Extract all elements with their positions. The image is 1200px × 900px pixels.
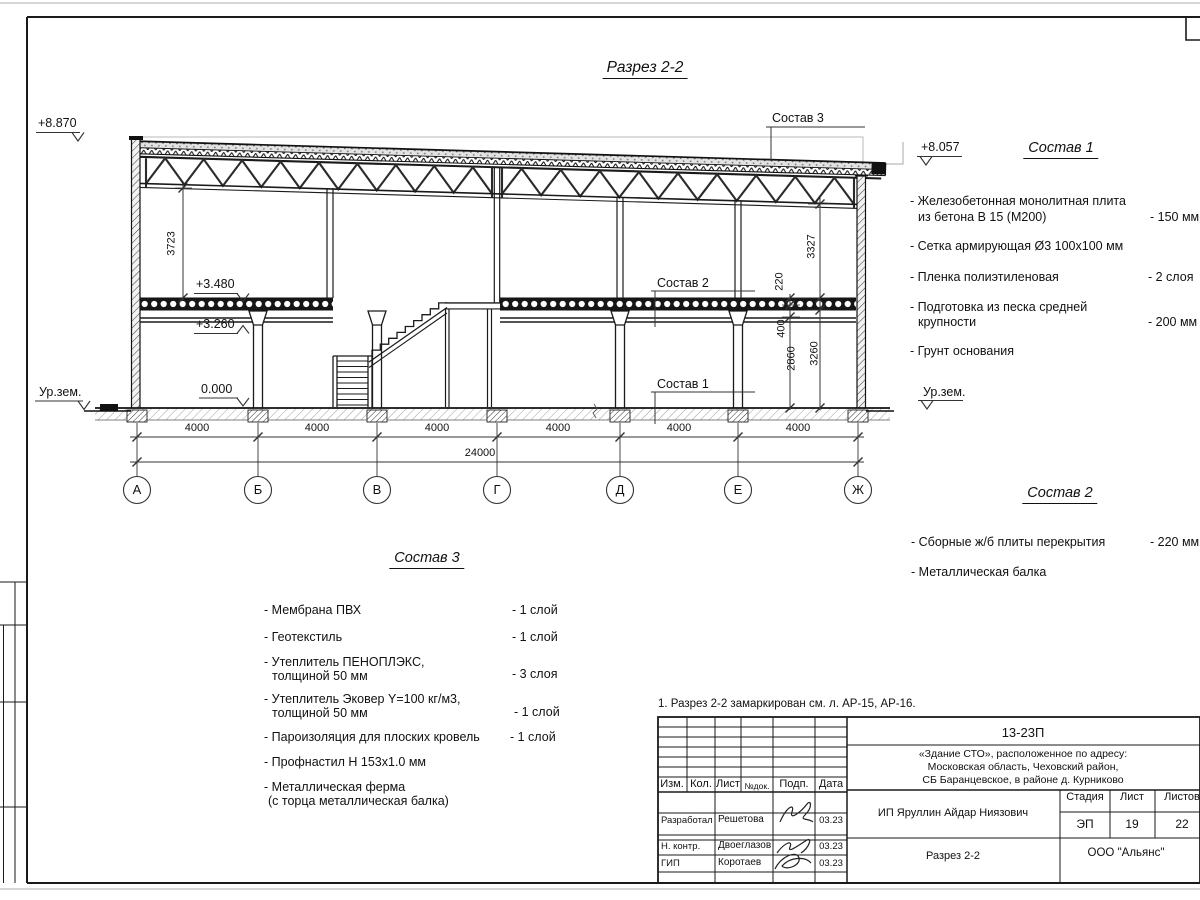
tb-col-podp: Подп. — [779, 779, 808, 790]
dim-2860: 2860 — [787, 324, 798, 394]
dim-3723: 3723 — [167, 209, 178, 279]
tb-company: ООО "Альянс" — [1088, 848, 1165, 860]
sostav2-item: - Металлическая балка — [911, 566, 1046, 579]
tb-stage-label: Стадия — [1066, 792, 1104, 803]
sostav1-item: крупности — [918, 316, 976, 329]
truss-bottom-chords — [140, 183, 858, 208]
sostav3-value: - 1 слой — [514, 706, 560, 719]
sostav3-value: - 1 слой — [512, 604, 558, 617]
sheet-note: 1. Разрез 2-2 замаркирован см. л. АР-15,… — [658, 699, 916, 711]
axis-e: Е — [734, 483, 743, 496]
sostav3-item: - Утеплитель ПЕНОПЛЭКС, — [264, 656, 424, 669]
columns-ground — [249, 311, 747, 408]
sostav1-value: - 200 мм — [1148, 316, 1197, 329]
dim-total: 24000 — [465, 448, 496, 459]
sostav1-item: - Подготовка из песка средней — [910, 301, 1087, 314]
sostav2-heading: Состав 2 — [1022, 486, 1097, 504]
tb-col-kol: Кол. — [690, 779, 712, 790]
roof-fascia — [871, 163, 885, 174]
level-roof-right: +8.057 — [921, 141, 960, 154]
dim-bay-2: 4000 — [305, 423, 329, 434]
axis-g: Г — [493, 483, 500, 496]
signatures — [775, 802, 813, 869]
tb-stage-value: ЭП — [1076, 818, 1093, 830]
frame-corner-box — [1186, 18, 1200, 40]
level-roof-left: +8.870 — [38, 117, 77, 130]
wall-left — [129, 136, 143, 421]
tb-row-role: Н. контр. — [661, 842, 700, 852]
tb-col-ndok: №док. — [745, 782, 770, 791]
dim-bay-6: 4000 — [786, 423, 810, 434]
sostav3-value: - 1 слой — [512, 631, 558, 644]
sostav3-heading: Состав 3 — [389, 551, 464, 569]
staircase — [333, 303, 501, 407]
roof-package — [132, 141, 886, 179]
dim-bay-3: 4000 — [425, 423, 449, 434]
tb-row-role: Разработал — [661, 816, 713, 826]
axis-b: Б — [254, 483, 263, 496]
sostav3-item: - Геотекстиль — [264, 631, 342, 644]
level-slab: +3.480 — [196, 278, 235, 291]
dim-bay-5: 4000 — [667, 423, 691, 434]
sostav3-item: - Мембрана ПВХ — [264, 604, 361, 617]
ground-level-left: Ур.зем. — [39, 386, 81, 399]
sostav3-item: - Пароизоляция для плоских кровель — [264, 731, 480, 744]
level-beam: +3.260 — [196, 318, 235, 331]
tb-sheets-value: 22 — [1175, 818, 1188, 830]
tb-col-izm: Изм. — [660, 779, 684, 790]
sostav3-value: - 3 слоя — [512, 668, 557, 681]
ground-floor — [84, 404, 894, 422]
tb-row-date: 03.23 — [819, 816, 843, 826]
tb-row-date: 03.23 — [819, 859, 843, 869]
sostav1-item: - Железобетонная монолитная плита — [910, 195, 1126, 208]
sostav3-item: толщиной 50 мм — [272, 670, 368, 683]
drawing-sheet: Разрез 2-2 +8.870 +8.057 +3.480 +3.260 0… — [0, 0, 1200, 900]
sostav3-item: - Утеплитель Эковер Y=100 кг/м3, — [264, 693, 460, 706]
tb-sheet-value: 19 — [1125, 818, 1138, 830]
dim-3327: 3327 — [807, 212, 818, 282]
leader-sostav1: Состав 1 — [657, 378, 709, 391]
tb-col-list: Лист — [716, 779, 740, 790]
tb-row-name: Двоеглазов — [718, 841, 771, 851]
sostav2-value: - 220 мм — [1150, 536, 1199, 549]
leader-sostav3: Состав 3 — [772, 112, 824, 125]
sostav3-item: толщиной 50 мм — [272, 707, 368, 720]
tb-sheets-label: Листов — [1164, 792, 1200, 803]
tb-row-name: Решетова — [718, 815, 764, 825]
tb-row-name: Коротаев — [718, 858, 761, 868]
level-zero: 0.000 — [201, 383, 232, 396]
sostav1-value: - 150 мм — [1150, 211, 1199, 224]
tb-row-date: 03.23 — [819, 842, 843, 852]
tb-doc-number: 13-23П — [1002, 726, 1045, 739]
sostav3-item: - Металлическая ферма — [264, 781, 405, 794]
dim-bay-4: 4000 — [546, 423, 570, 434]
entry-step — [100, 404, 118, 411]
tb-drawing-name: Разрез 2-2 — [926, 851, 980, 862]
tb-col-data: Дата — [819, 779, 843, 790]
tb-object-line: «Здание СТО», расположенное по адресу: — [919, 749, 1127, 760]
dim-3260: 3260 — [810, 319, 821, 389]
sostav1-item: - Сетка армирующая Ø3 100х100 мм — [910, 240, 1123, 253]
sostav3-value: - 1 слой — [510, 731, 556, 744]
sostav1-item: - Пленка полиэтиленовая — [910, 271, 1059, 284]
tb-object-line: СБ Баранцевское, в районе д. Курниково — [922, 775, 1123, 786]
sostav1-value: - 2 слоя — [1148, 271, 1193, 284]
sostav2-item: - Сборные ж/б плиты перекрытия — [911, 536, 1105, 549]
ground-level-right: Ур.зем. — [923, 386, 965, 399]
tb-sheet-label: Лист — [1120, 792, 1144, 803]
axis-v: В — [373, 483, 382, 496]
wall-right — [855, 176, 868, 422]
tb-row-role: ГИП — [661, 859, 680, 869]
leader-sostav2: Состав 2 — [657, 277, 709, 290]
page-title: Разрез 2-2 — [603, 60, 688, 79]
axis-a: А — [133, 483, 142, 496]
tb-object-line: Московская область, Чеховский район, — [928, 762, 1119, 773]
axis-d: Д — [616, 483, 625, 496]
sostav3-item: (с торца металлическая балка) — [268, 795, 449, 808]
tb-client: ИП Яруллин Айдар Ниязович — [878, 808, 1028, 819]
floor-slab-2f — [140, 298, 856, 322]
sostav1-item: - Грунт основания — [910, 345, 1014, 358]
dim-bay-1: 4000 — [185, 423, 209, 434]
left-margin-stamp — [0, 582, 27, 883]
axis-zh: Ж — [852, 483, 864, 496]
sostav1-heading: Состав 1 — [1023, 141, 1098, 159]
sostav3-item: - Профнастил Н 153х1.0 мм — [264, 756, 426, 769]
sostav1-item: из бетона В 15 (М200) — [918, 211, 1046, 224]
